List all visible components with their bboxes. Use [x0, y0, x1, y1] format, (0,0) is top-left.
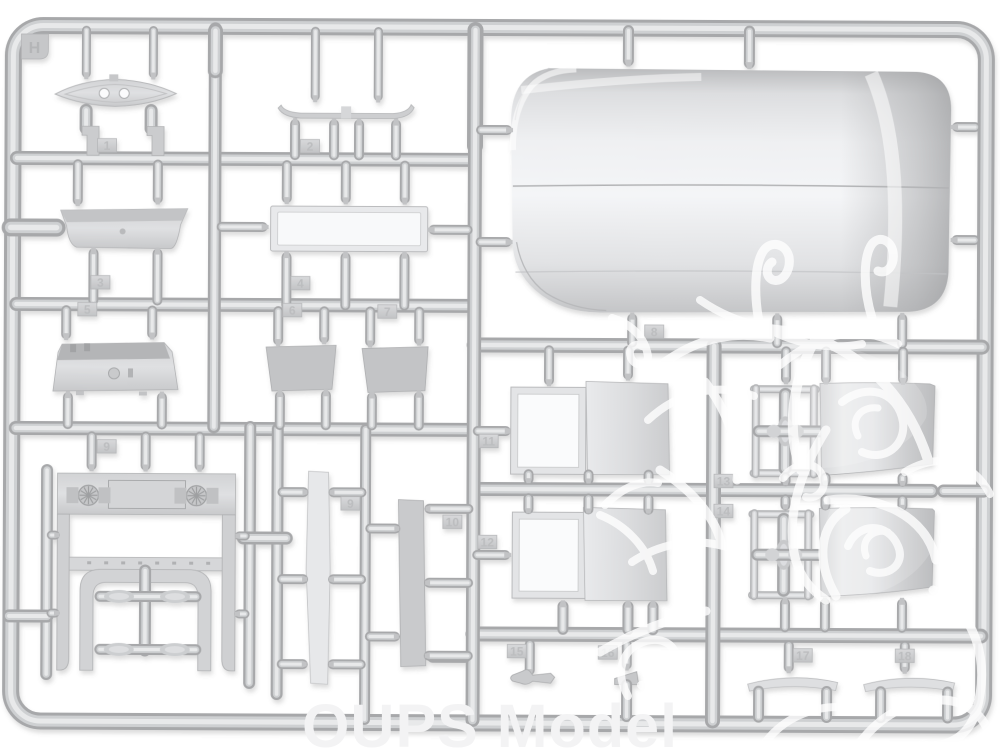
svg-text:8: 8	[651, 325, 658, 339]
svg-text:13: 13	[717, 474, 731, 488]
svg-text:11: 11	[482, 434, 495, 448]
svg-text:9: 9	[103, 440, 110, 454]
svg-text:12: 12	[481, 535, 495, 549]
svg-text:H: H	[29, 40, 41, 57]
svg-text:4: 4	[297, 277, 304, 291]
svg-text:3: 3	[97, 276, 104, 290]
svg-text:6: 6	[289, 304, 296, 318]
svg-text:1: 1	[104, 139, 111, 153]
svg-text:15: 15	[510, 645, 524, 659]
svg-text:5: 5	[84, 303, 91, 317]
svg-text:18: 18	[898, 649, 912, 663]
svg-text:7: 7	[384, 305, 391, 319]
svg-text:OUPS Model: OUPS Model	[302, 692, 678, 750]
svg-text:9: 9	[347, 497, 354, 511]
svg-text:14: 14	[717, 504, 731, 518]
svg-text:17: 17	[796, 649, 810, 663]
svg-text:10: 10	[446, 515, 460, 529]
svg-text:2: 2	[307, 140, 314, 154]
